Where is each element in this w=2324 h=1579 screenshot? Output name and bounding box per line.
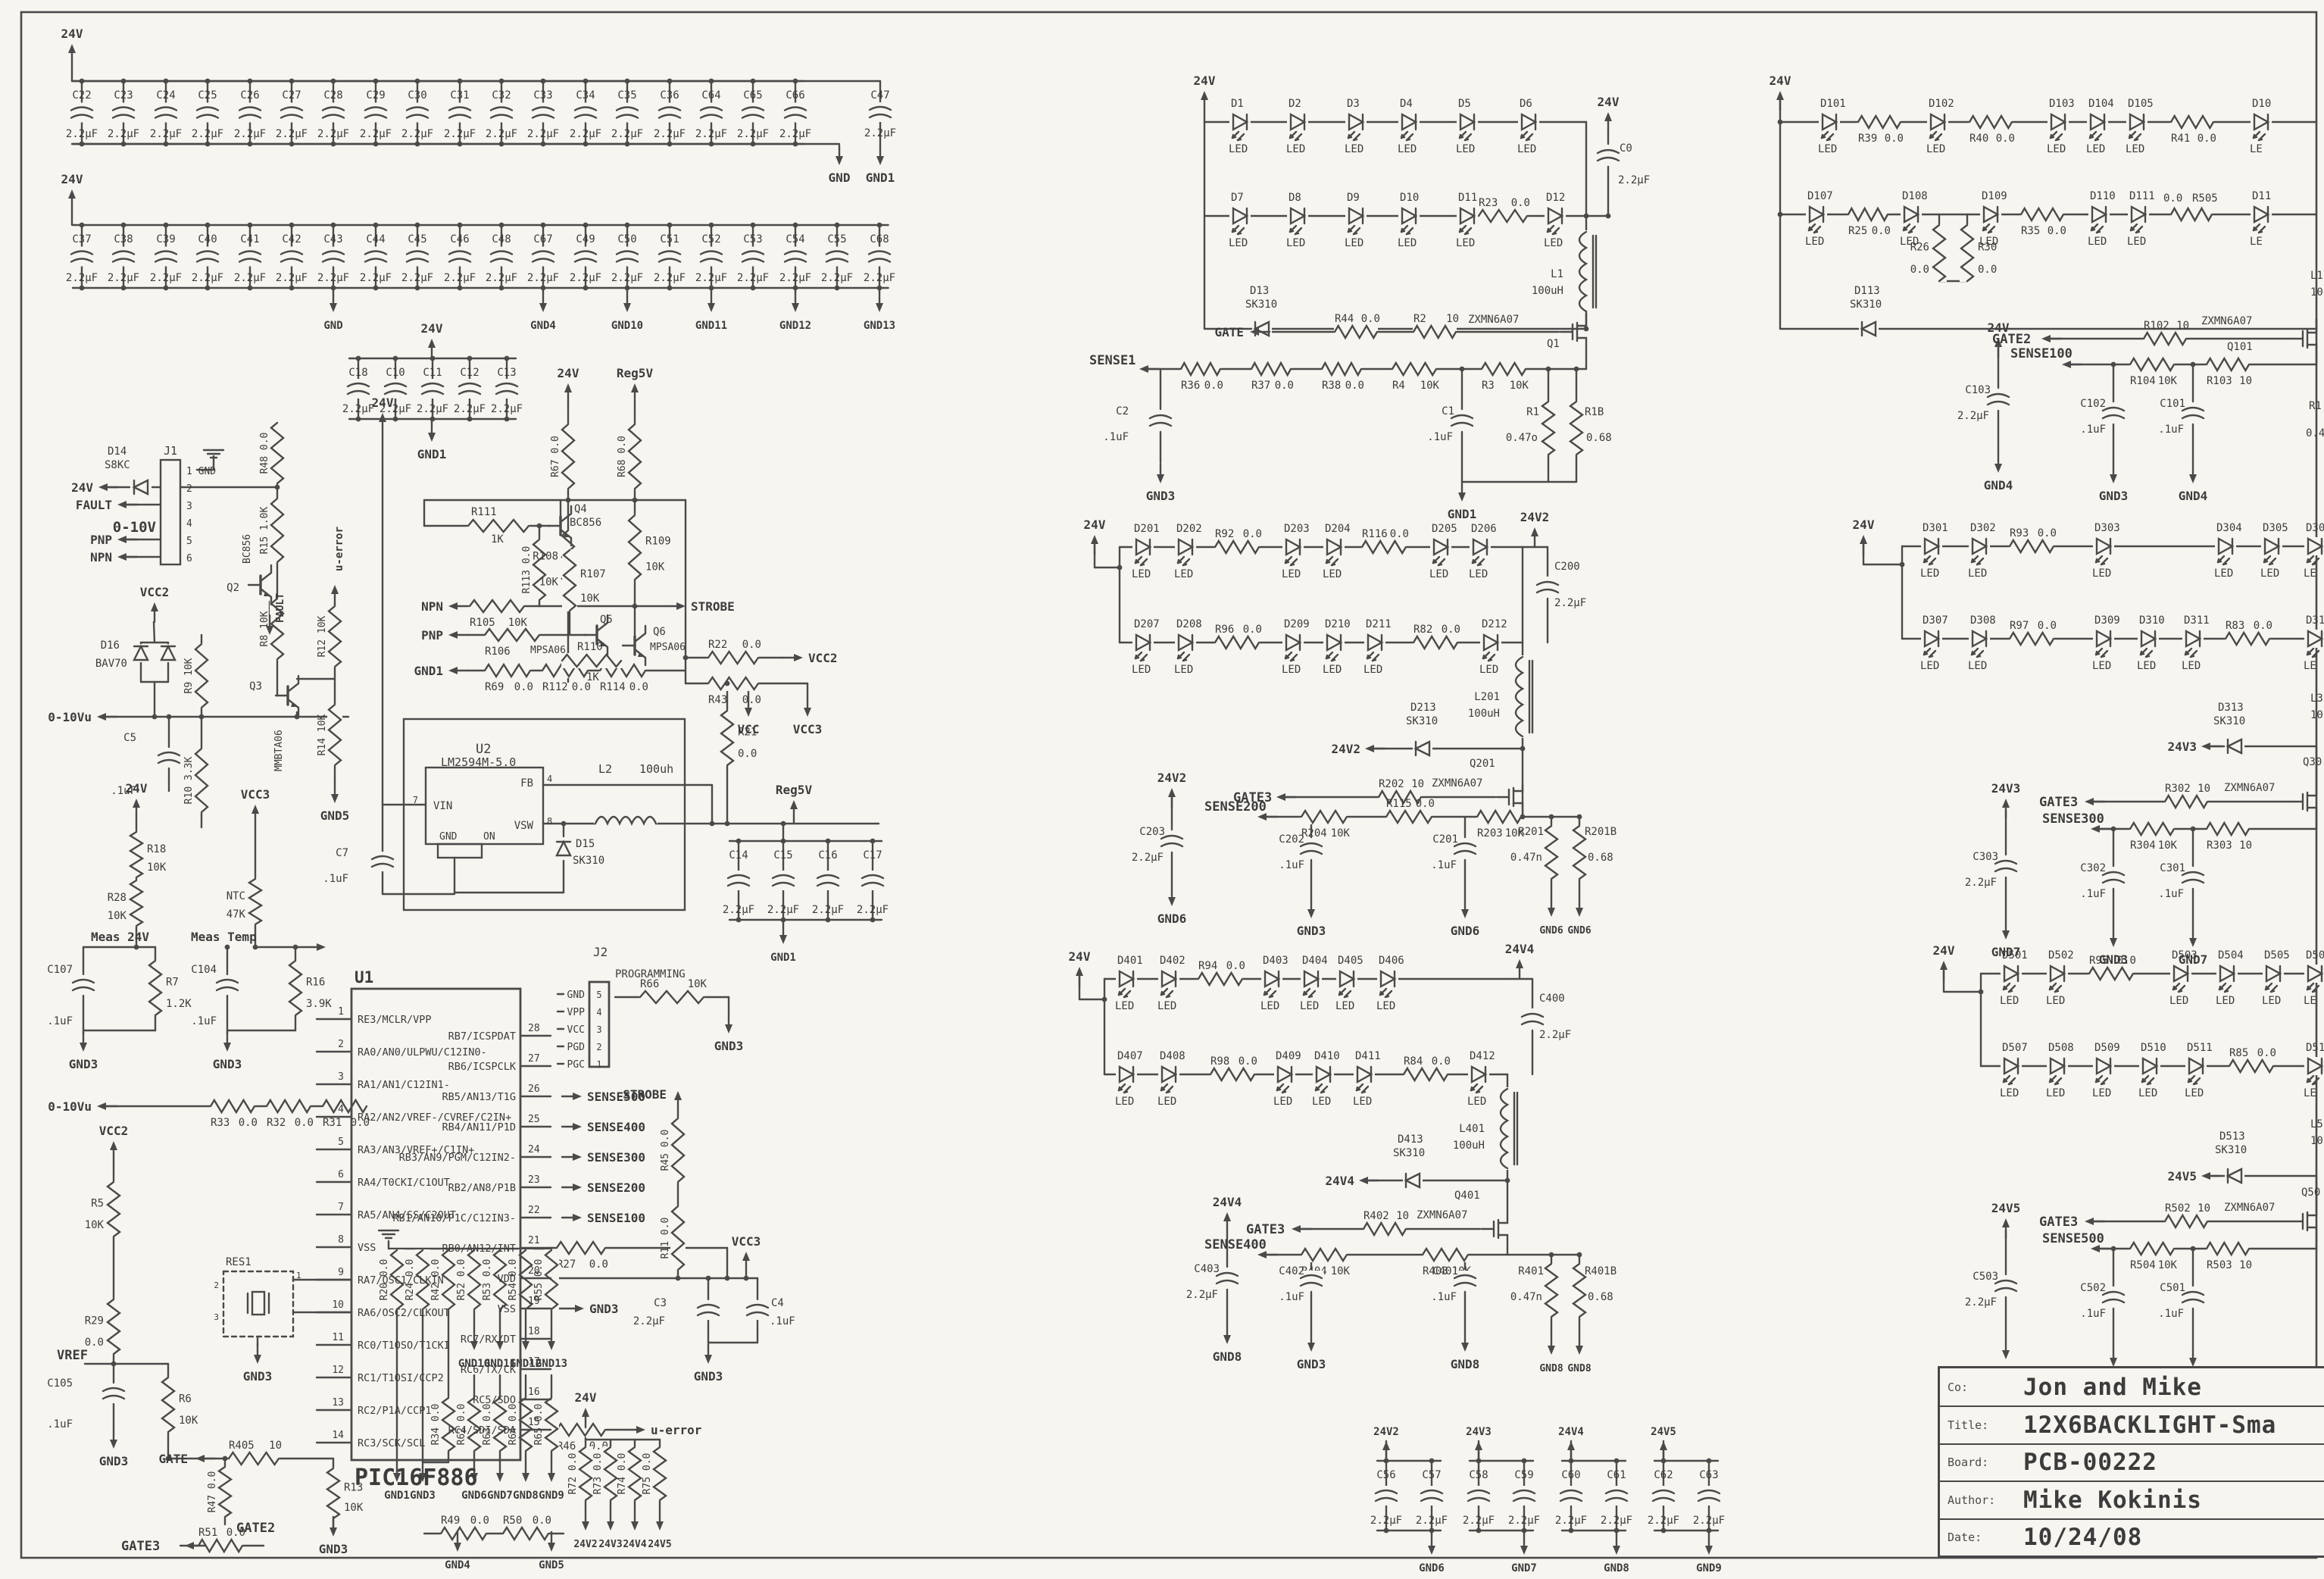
label: GATE xyxy=(1214,325,1244,339)
net-arrow xyxy=(1276,793,1285,801)
label: SENSE300 xyxy=(587,1150,645,1165)
label: LED xyxy=(1335,1000,1354,1012)
label: R49 xyxy=(441,1515,460,1527)
label: RES1 xyxy=(226,1256,251,1268)
led-arrow xyxy=(2185,652,2186,655)
junction-dot xyxy=(356,356,361,361)
label: GATE2 xyxy=(1992,332,2031,347)
led-arrow xyxy=(2096,1079,2097,1082)
net-arrow xyxy=(676,602,686,610)
led-arrow xyxy=(2313,991,2316,992)
led-arrow xyxy=(2179,991,2182,992)
led-arrow xyxy=(2004,1079,2004,1082)
label: LED xyxy=(1229,143,1248,155)
mask xyxy=(573,103,598,123)
label: .1uF xyxy=(1279,859,1304,871)
label: R204 xyxy=(1301,827,1327,840)
label: GND3 xyxy=(694,1369,723,1384)
label: C503 xyxy=(1973,1271,1998,1283)
label: 1K xyxy=(491,533,504,546)
mask xyxy=(573,247,598,267)
label: R97 xyxy=(2010,620,2029,632)
label: GND4 xyxy=(530,320,556,332)
junction-dot xyxy=(835,286,840,291)
label: R12 10K xyxy=(317,615,328,657)
label: C47 xyxy=(870,89,889,102)
led-arrow xyxy=(1924,559,1925,562)
label: BC856 xyxy=(242,534,253,564)
label: LED xyxy=(1229,237,1248,249)
net-arrow xyxy=(117,536,127,543)
net-arrow xyxy=(254,1355,261,1364)
label: LED xyxy=(1805,236,1824,248)
label: GND6 xyxy=(1451,924,1480,938)
led-arrow xyxy=(1285,560,1286,563)
label: LED xyxy=(2086,143,2105,155)
label: RB2/AN8/P1B xyxy=(448,1182,516,1194)
junction-dot xyxy=(625,142,630,147)
label: C50 xyxy=(617,233,636,245)
label: D5 xyxy=(1458,98,1471,110)
mask xyxy=(868,102,892,122)
led-arrow xyxy=(2004,986,2004,990)
junction-dot xyxy=(331,79,336,84)
label: 5 xyxy=(596,990,601,1000)
label: .1uF xyxy=(770,1315,795,1327)
label: 2.2µF xyxy=(150,128,182,140)
label: L1 xyxy=(2310,270,2323,282)
label: GND3 xyxy=(213,1057,242,1071)
junction-dot xyxy=(1102,997,1107,1002)
label: C22 xyxy=(72,89,91,102)
label: R15 1.0K xyxy=(259,507,270,555)
net-arrow xyxy=(1604,112,1612,121)
label: 14 xyxy=(332,1430,344,1441)
led-arrow xyxy=(2191,656,2194,657)
label: 24V5 xyxy=(648,1539,671,1550)
label: R402 xyxy=(1363,1210,1389,1222)
net-arrow xyxy=(1201,91,1208,100)
junction-dot xyxy=(537,524,542,529)
junction-dot xyxy=(633,498,638,503)
label: LED xyxy=(2214,568,2233,580)
label: C30 xyxy=(408,89,426,102)
net-arrow xyxy=(1223,1335,1231,1344)
label: .1uF xyxy=(2158,888,2184,900)
label: 2.2µF xyxy=(695,272,727,284)
label: 9 xyxy=(338,1267,344,1278)
label: R11 0.0 xyxy=(660,1218,671,1259)
label: D305 xyxy=(2263,522,2288,534)
label: SK310 xyxy=(1406,715,1438,727)
mask xyxy=(861,871,885,890)
label: 24V4 xyxy=(1558,1426,1584,1438)
junction-dot xyxy=(164,142,169,147)
label: R40 xyxy=(1969,133,1988,145)
label: 2.2µF xyxy=(1554,597,1586,609)
junction-dot xyxy=(1584,214,1589,219)
led-arrow xyxy=(2307,559,2308,562)
label: C3 xyxy=(654,1297,667,1309)
junction-dot xyxy=(826,839,831,844)
net-arrow xyxy=(185,1542,194,1549)
label: R48 0.0 xyxy=(259,433,270,474)
mask xyxy=(405,103,430,123)
junction-dot xyxy=(205,79,211,84)
junction-dot xyxy=(205,223,211,228)
label: LED xyxy=(1900,236,1919,248)
led-arrow xyxy=(1407,233,1410,234)
junction-dot xyxy=(111,1362,117,1367)
label: VCC3 xyxy=(732,1234,761,1249)
label: C15 xyxy=(773,849,792,861)
label: D410 xyxy=(1314,1050,1340,1062)
led-arrow xyxy=(1161,992,1162,995)
label: C4 xyxy=(771,1297,784,1309)
junction-dot xyxy=(710,821,715,827)
label: 2.2µF xyxy=(1957,410,1989,422)
label: R304 xyxy=(2130,840,2156,852)
label: SENSE1 xyxy=(1089,353,1135,368)
led-arrow xyxy=(1178,655,1179,658)
mask xyxy=(154,103,178,123)
label: RA7/OSC1/CLKIN xyxy=(358,1274,444,1287)
net-arrow xyxy=(330,303,337,312)
mask xyxy=(321,247,345,267)
led-arrow xyxy=(1924,652,1925,655)
fet-drain xyxy=(2307,319,2316,333)
label: 2.2µF xyxy=(444,272,476,284)
net-arrow xyxy=(1531,527,1538,536)
led-arrow xyxy=(2259,232,2262,233)
label: GND3 xyxy=(1297,924,1326,938)
label: R111 xyxy=(471,506,497,518)
label: J2 xyxy=(593,945,608,959)
led-arrow xyxy=(1401,135,1402,138)
junction-dot xyxy=(1577,815,1582,820)
label: C40 xyxy=(198,233,217,245)
net-arrow xyxy=(428,433,436,442)
led-arrow xyxy=(1827,139,1830,140)
label: R72 0.0 xyxy=(567,1453,579,1495)
label: D213 xyxy=(1410,702,1436,714)
led-arrow xyxy=(1988,232,1991,233)
junction-dot xyxy=(709,142,714,147)
label: D14 xyxy=(108,446,127,458)
net-arrow xyxy=(2110,474,2117,483)
label: D309 xyxy=(2094,614,2120,627)
label: C64 xyxy=(701,89,720,102)
label: D507 xyxy=(2002,1042,2028,1054)
label: D411 xyxy=(1355,1050,1381,1062)
label: D6 xyxy=(1520,98,1532,110)
label: 4 xyxy=(596,1007,601,1018)
label: C39 xyxy=(156,233,175,245)
label: 2.2µF xyxy=(1132,852,1164,864)
led-arrow xyxy=(2009,991,2012,992)
label: R1 xyxy=(2309,400,2322,412)
mask xyxy=(195,103,220,123)
co-label: Co: xyxy=(1940,1380,2023,1394)
label: GND11 xyxy=(695,320,727,332)
label: 0.0 xyxy=(1872,225,1891,237)
label: R303 xyxy=(2207,840,2232,852)
label: R109 xyxy=(645,535,671,547)
junction-dot xyxy=(164,79,169,84)
label: U1 xyxy=(355,968,373,986)
label: ZXMN6A07 xyxy=(1432,777,1482,789)
label: GND xyxy=(439,831,458,843)
label: Q30 xyxy=(2303,756,2322,768)
label: L5 xyxy=(2310,1118,2323,1130)
label: LED xyxy=(1282,568,1301,580)
label: GND1 xyxy=(414,664,443,678)
label: 21 xyxy=(528,1235,540,1246)
net-arrow xyxy=(573,1123,582,1130)
label: 24V xyxy=(372,396,394,410)
label: 24V5 xyxy=(1991,1201,2021,1215)
net-arrow xyxy=(1307,1343,1315,1352)
label: 10K xyxy=(645,561,665,573)
label: C400 xyxy=(1539,993,1565,1005)
led-arrow xyxy=(1309,996,1312,997)
junction-dot xyxy=(415,79,420,84)
led-arrow xyxy=(1357,1087,1357,1090)
mask xyxy=(321,103,345,123)
led-arrow xyxy=(1124,996,1127,997)
led-arrow xyxy=(2097,232,2100,233)
label: LED xyxy=(1968,568,1987,580)
label: C35 xyxy=(617,89,636,102)
label: LE xyxy=(2250,143,2263,155)
led-arrow xyxy=(1929,564,1932,564)
junction-dot xyxy=(793,223,798,228)
junction-dot xyxy=(1549,1252,1554,1258)
mask xyxy=(1596,145,1620,165)
label: 5 xyxy=(186,536,192,547)
label: C37 xyxy=(72,233,91,245)
label: 0.4 xyxy=(2306,427,2324,439)
net-arrow xyxy=(454,1543,461,1552)
junction-dot xyxy=(430,417,436,422)
junction-dot xyxy=(1460,367,1465,372)
led-arrow xyxy=(1983,227,1984,230)
label: U2 xyxy=(476,742,491,757)
label: SK310 xyxy=(1245,299,1277,311)
label: 0.0 xyxy=(239,1117,258,1129)
label: 10 xyxy=(2310,1135,2323,1147)
net-arrow xyxy=(151,602,158,611)
label: 100uh xyxy=(639,762,673,776)
net-arrow xyxy=(1520,1546,1528,1555)
crystal xyxy=(252,1292,264,1315)
title-value: 12X6BACKLIGHT-Sma xyxy=(2023,1412,2276,1439)
label: SENSE200 xyxy=(1204,799,1267,815)
net-arrow xyxy=(448,631,458,639)
junction-dot xyxy=(164,223,169,228)
label: RB1/AN10/P1C/C12IN3- xyxy=(392,1212,516,1224)
fet-drain xyxy=(1577,312,1586,326)
label: STROBE xyxy=(623,1087,667,1102)
label: GND1 xyxy=(384,1490,410,1502)
label: R7 xyxy=(166,976,179,988)
label: R302 xyxy=(2165,783,2191,795)
label: 2.2µF xyxy=(486,128,517,140)
label: 0.0 xyxy=(1361,313,1380,325)
label: 2 xyxy=(596,1042,601,1052)
label: LED xyxy=(2092,1087,2111,1099)
label: LE xyxy=(2304,995,2316,1007)
label: D409 xyxy=(1276,1050,1301,1062)
led-arrow xyxy=(2271,991,2274,992)
junction-dot xyxy=(2191,362,2196,367)
net-arrow xyxy=(117,553,127,561)
mask xyxy=(825,247,849,267)
junction-dot xyxy=(744,1276,749,1281)
junction-dot xyxy=(2191,1246,2196,1252)
label: GND4 xyxy=(1984,478,2013,492)
label: 10 xyxy=(269,1440,282,1452)
junction-dot xyxy=(2111,827,2116,832)
label: GATE3 xyxy=(1246,1222,1285,1237)
label: D111 xyxy=(2129,190,2155,202)
label: 24V xyxy=(421,321,443,336)
label: GND4 xyxy=(2179,489,2208,503)
board-value: PCB-00222 xyxy=(2023,1449,2157,1476)
label: 0.0 xyxy=(1226,960,1245,972)
net-arrow xyxy=(573,1214,582,1221)
label: R28 xyxy=(108,892,127,904)
mask xyxy=(1148,411,1173,430)
net-arrow xyxy=(68,44,76,53)
junction-dot xyxy=(164,286,169,291)
mask xyxy=(816,871,840,890)
net-arrow xyxy=(2041,335,2051,342)
label: D210 xyxy=(1325,618,1351,630)
label: C0 xyxy=(1620,142,1632,155)
junction-dot xyxy=(1505,1178,1510,1183)
label: LED xyxy=(2138,1087,2157,1099)
junction-dot xyxy=(870,918,876,923)
label: Reg5V xyxy=(617,366,654,380)
junction-dot xyxy=(736,918,742,923)
label: LED xyxy=(1157,1000,1176,1012)
led-arrow xyxy=(1161,1087,1162,1090)
label: 10K xyxy=(108,910,127,922)
label: R502 xyxy=(2165,1202,2191,1215)
label: D408 xyxy=(1160,1050,1185,1062)
label: LED xyxy=(1323,664,1342,676)
label: 2.2µF xyxy=(66,128,98,140)
junction-dot xyxy=(248,142,253,147)
label: RC3/SCK/SCL xyxy=(358,1437,425,1449)
mask xyxy=(867,247,892,267)
label: R94 xyxy=(1198,960,1217,972)
led-arrow xyxy=(1135,655,1136,658)
label: 12 xyxy=(332,1365,344,1376)
label: 24V3 xyxy=(2167,739,2197,754)
led-arrow xyxy=(2254,227,2254,230)
label: 24V xyxy=(1069,949,1091,964)
label: C62 xyxy=(1654,1469,1673,1481)
label: VCC3 xyxy=(241,787,270,802)
schematic-sheet: C222.2µFC232.2µFC242.2µFC252.2µFC262.2µF… xyxy=(0,0,2324,1579)
label: LED xyxy=(1398,237,1417,249)
label: R503 xyxy=(2207,1259,2232,1271)
label: C34 xyxy=(576,89,595,102)
label: RC5/SDO xyxy=(473,1394,516,1406)
label: D310 xyxy=(2139,614,2165,627)
label: L201 xyxy=(1474,691,1500,703)
net-arrow xyxy=(117,501,127,508)
label: GND3 xyxy=(2099,952,2129,967)
label: SK310 xyxy=(1850,299,1882,311)
label: R4 xyxy=(1392,380,1405,392)
led-arrow xyxy=(2269,564,2272,564)
label: R16 xyxy=(306,976,325,988)
label: C302 xyxy=(2080,862,2106,874)
junction-dot xyxy=(877,223,882,228)
junction-dot xyxy=(499,142,504,147)
title-block-row-date: Date: 10/24/08 xyxy=(1940,1518,2324,1556)
label: RA0/AN0/ULPWU/C12IN0- xyxy=(358,1046,487,1058)
label: D104 xyxy=(2088,98,2114,110)
label: C5 xyxy=(123,732,136,744)
mask xyxy=(615,247,639,267)
junction-dot xyxy=(1900,562,1905,568)
label: LED xyxy=(1273,1096,1292,1108)
junction-dot xyxy=(331,142,336,147)
label: 6 xyxy=(186,553,192,564)
led-arrow xyxy=(1135,560,1136,563)
label: 100uH xyxy=(1453,1140,1485,1152)
label: GND3 xyxy=(1146,489,1176,503)
label: C66 xyxy=(786,89,804,102)
label: 2.2µF xyxy=(1693,1515,1725,1527)
label: LED xyxy=(1544,237,1563,249)
junction-dot xyxy=(152,714,158,720)
label: C46 xyxy=(450,233,469,245)
label: GND1 xyxy=(417,447,447,461)
label: 10K xyxy=(179,1415,198,1427)
label: SENSE400 xyxy=(1204,1237,1267,1252)
junction-dot xyxy=(504,356,510,361)
junction-dot xyxy=(2111,362,2116,367)
label: 0.0 xyxy=(1442,624,1460,636)
label: D313 xyxy=(2218,702,2244,714)
led-arrow xyxy=(2218,559,2219,562)
junction-dot xyxy=(625,223,630,228)
label: GND7 xyxy=(2179,952,2208,967)
label: 4 xyxy=(338,1104,344,1115)
label: R37 xyxy=(1251,380,1270,392)
label: SK310 xyxy=(2215,1144,2247,1156)
label: 24V xyxy=(1770,73,1791,88)
fet-drain xyxy=(2307,782,2316,796)
label: C57 xyxy=(1422,1469,1441,1481)
label: 10K xyxy=(147,861,167,874)
label: RC0/T1OSO/T1CKI xyxy=(358,1340,450,1352)
label: GND3 xyxy=(69,1057,98,1071)
led-arrow xyxy=(1521,135,1522,138)
led-arrow xyxy=(1380,992,1381,995)
junction-dot xyxy=(1429,1459,1435,1464)
junction-dot xyxy=(373,142,379,147)
label: C51 xyxy=(660,233,679,245)
label: 1.2K xyxy=(166,998,192,1010)
led-arrow xyxy=(1304,992,1304,995)
label: D508 xyxy=(2048,1042,2074,1054)
